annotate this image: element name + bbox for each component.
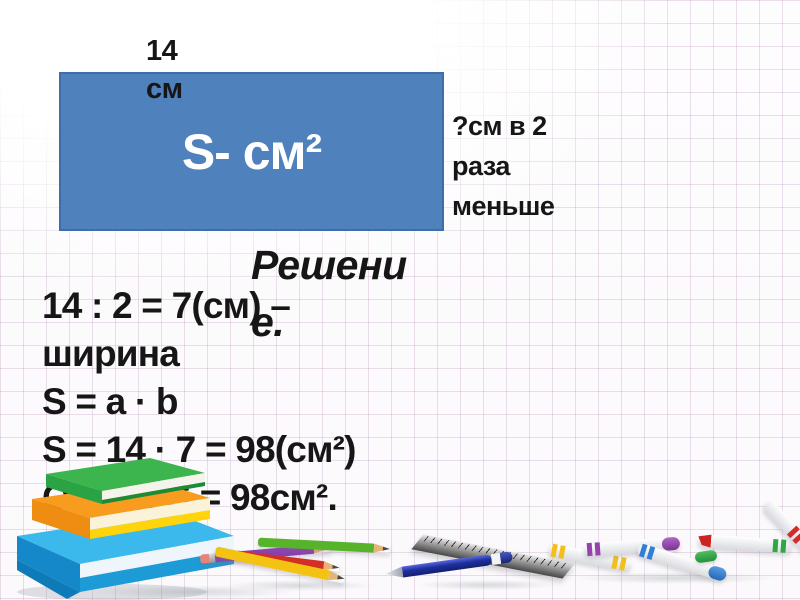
marker-band [772,539,778,552]
marker-nib [698,534,712,548]
marker-band [611,556,618,570]
pencil-tip [374,544,390,554]
solution-line: S = a · b [42,378,562,426]
books-stack [12,452,242,600]
solution-heading: Решени е. [251,237,421,351]
width-label: ?см в 2 раза меньше [452,106,576,226]
shadow [540,570,800,586]
marker-band [619,557,626,571]
solution-heading-line1: Решени [251,237,421,294]
pen-nib [385,567,403,580]
slide-canvas: S- см² 14 см ?см в 2 раза меньше Решени … [0,0,800,600]
marker-band [550,544,557,558]
area-label: S- см² [59,72,444,231]
marker-band [587,543,593,556]
length-label: 14 см [146,32,212,108]
pen-end [500,551,513,564]
solution-heading-line2: е. [251,294,421,351]
marker-band [780,540,786,553]
